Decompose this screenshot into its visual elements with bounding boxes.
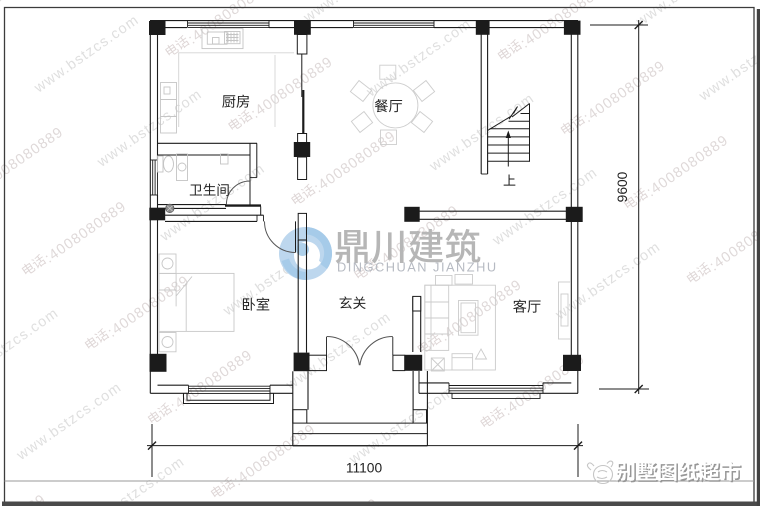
- svg-text:11100: 11100: [346, 461, 383, 476]
- svg-text:9600: 9600: [615, 171, 630, 202]
- svg-text:DINGCHUAN JIANZHU: DINGCHUAN JIANZHU: [337, 260, 498, 275]
